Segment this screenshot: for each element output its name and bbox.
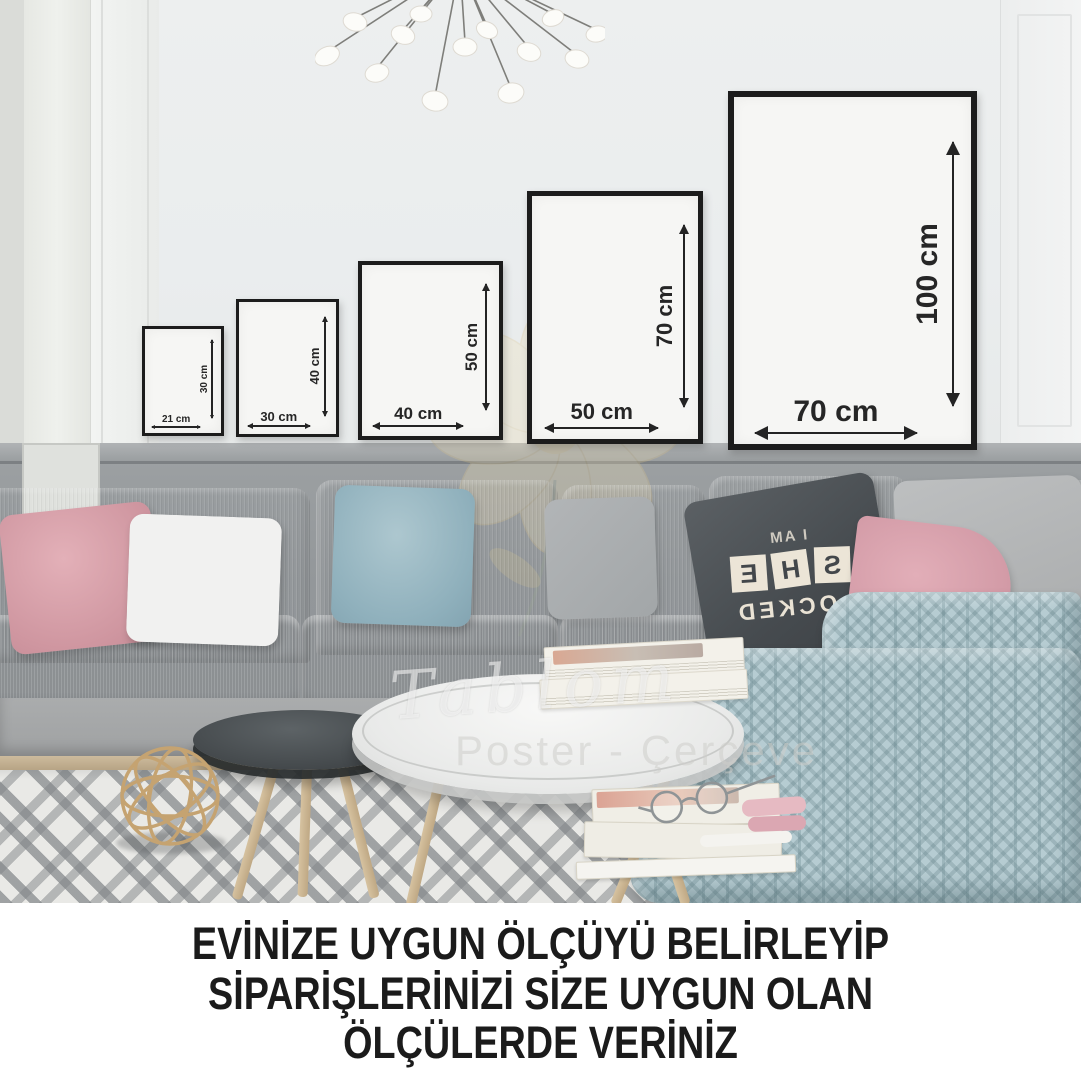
vertical-arrow-icon — [952, 142, 954, 406]
pillow-letter-blocks: S H E — [729, 544, 853, 592]
frame-40x50: 50 cm 40 cm — [358, 261, 503, 440]
vertical-arrow-icon — [485, 284, 487, 411]
product-photo: 30 cm 21 cm 40 cm 30 cm 50 cm 40 cm 70 c… — [0, 0, 1081, 1081]
horizontal-arrow-icon — [373, 425, 463, 427]
width-label: 21 cm — [152, 414, 201, 425]
magazine — [576, 854, 796, 880]
horizontal-arrow-icon — [755, 432, 916, 434]
pink-rolled-textile — [748, 815, 806, 832]
width-dimension: 40 cm — [373, 404, 463, 428]
height-label: 30 cm — [199, 365, 210, 393]
width-label: 40 cm — [373, 404, 463, 424]
letter-block: S — [815, 546, 852, 583]
horizontal-arrow-icon — [545, 427, 658, 429]
caption-line-2: SİPARİŞLERİNİZİ SİZE UYGUN OLAN — [86, 969, 994, 1019]
width-dimension: 70 cm — [755, 395, 916, 434]
width-dimension: 50 cm — [545, 399, 658, 429]
vertical-arrow-icon — [683, 225, 685, 407]
wall-molding — [1017, 14, 1072, 427]
right-wall-panel — [1000, 0, 1081, 443]
width-dimension: 21 cm — [152, 414, 201, 428]
left-wall-edge — [0, 0, 24, 443]
frame-50x70: 70 cm 50 cm — [527, 191, 703, 444]
width-label: 30 cm — [248, 409, 310, 424]
caption-line-3: ÖLÇÜLERDE VERİNİZ — [86, 1018, 994, 1068]
gold-wire-sphere-decor — [116, 742, 224, 850]
blue-pillow — [331, 485, 476, 628]
left-wall-panel — [24, 0, 91, 443]
width-label: 50 cm — [545, 399, 658, 425]
pilaster-groove — [101, 0, 103, 443]
letter-block: E — [730, 554, 768, 592]
height-dimension: 50 cm — [485, 284, 487, 411]
height-label: 100 cm — [911, 223, 945, 325]
frame-70x100: 100 cm 70 cm — [728, 91, 977, 450]
branch-chandelier-icon — [315, 0, 605, 116]
gray-pillow-middle — [544, 496, 658, 620]
height-dimension: 40 cm — [324, 317, 326, 416]
height-dimension: 30 cm — [211, 340, 213, 418]
watermark-subtitle-text: Poster - Çerçeve — [455, 727, 818, 775]
vertical-arrow-icon — [324, 317, 326, 416]
horizontal-arrow-icon — [248, 425, 310, 427]
caption-banner: EVİNİZE UYGUN ÖLÇÜYÜ BELİRLEYİP SİPARİŞL… — [0, 903, 1081, 1081]
horizontal-arrow-icon — [152, 426, 201, 428]
caption-line-1: EVİNİZE UYGUN ÖLÇÜYÜ BELİRLEYİP — [86, 919, 994, 969]
letter-block: H — [771, 548, 812, 589]
height-label: 70 cm — [652, 285, 678, 347]
frame-21x30: 30 cm 21 cm — [142, 326, 224, 436]
height-dimension: 70 cm — [683, 225, 685, 407]
height-dimension: 100 cm — [952, 142, 954, 406]
height-label: 40 cm — [307, 348, 322, 385]
frame-30x40: 40 cm 30 cm — [236, 299, 339, 437]
chevron-pattern-pillow — [126, 513, 282, 646]
width-dimension: 30 cm — [248, 409, 310, 427]
vertical-arrow-icon — [211, 340, 213, 418]
width-label: 70 cm — [755, 395, 916, 429]
height-label: 50 cm — [462, 323, 482, 371]
